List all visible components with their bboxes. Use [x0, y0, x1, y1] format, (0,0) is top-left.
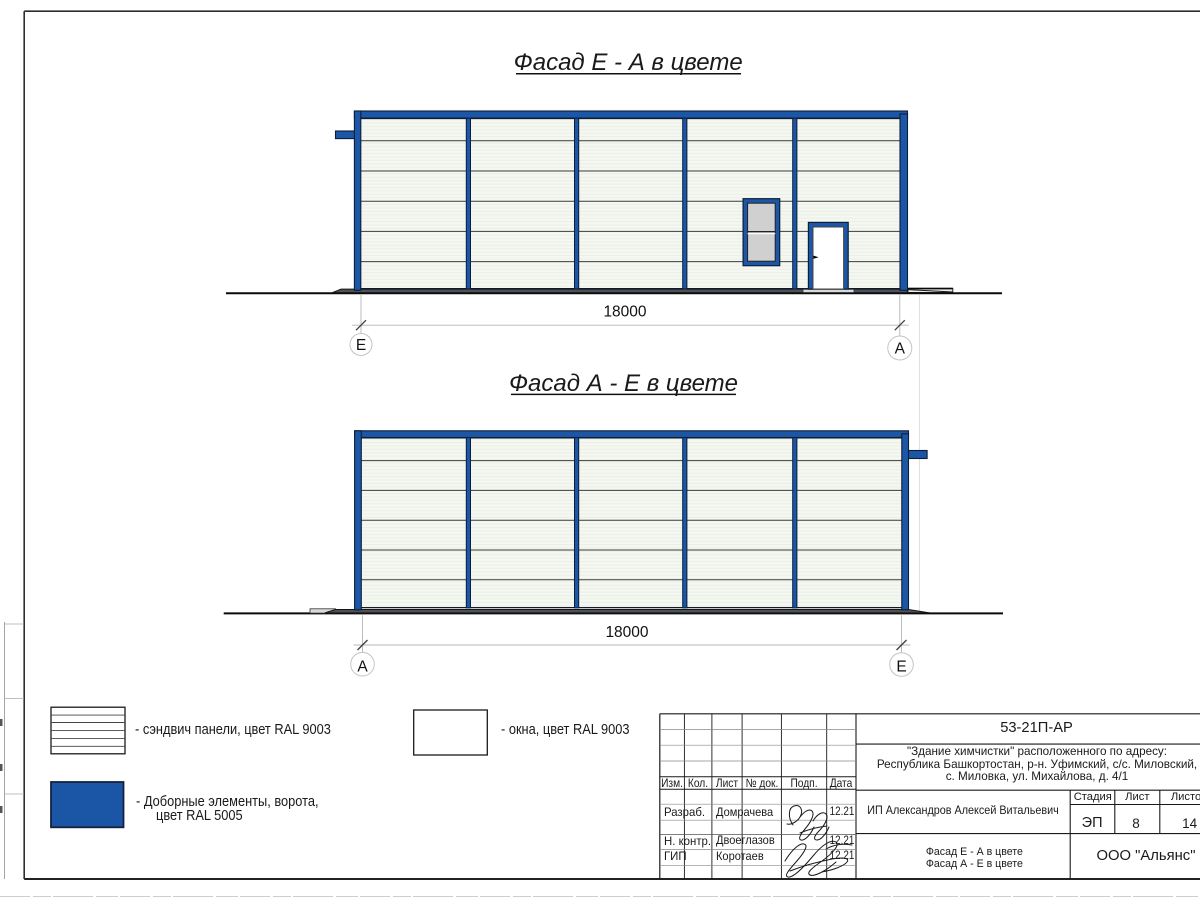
svg-text:Е: Е [356, 337, 366, 354]
svg-text:18000: 18000 [603, 303, 646, 320]
svg-text:Е: Е [896, 658, 906, 675]
svg-text:А: А [895, 340, 906, 357]
svg-text:А: А [357, 658, 368, 675]
svg-text:18000: 18000 [605, 624, 648, 641]
